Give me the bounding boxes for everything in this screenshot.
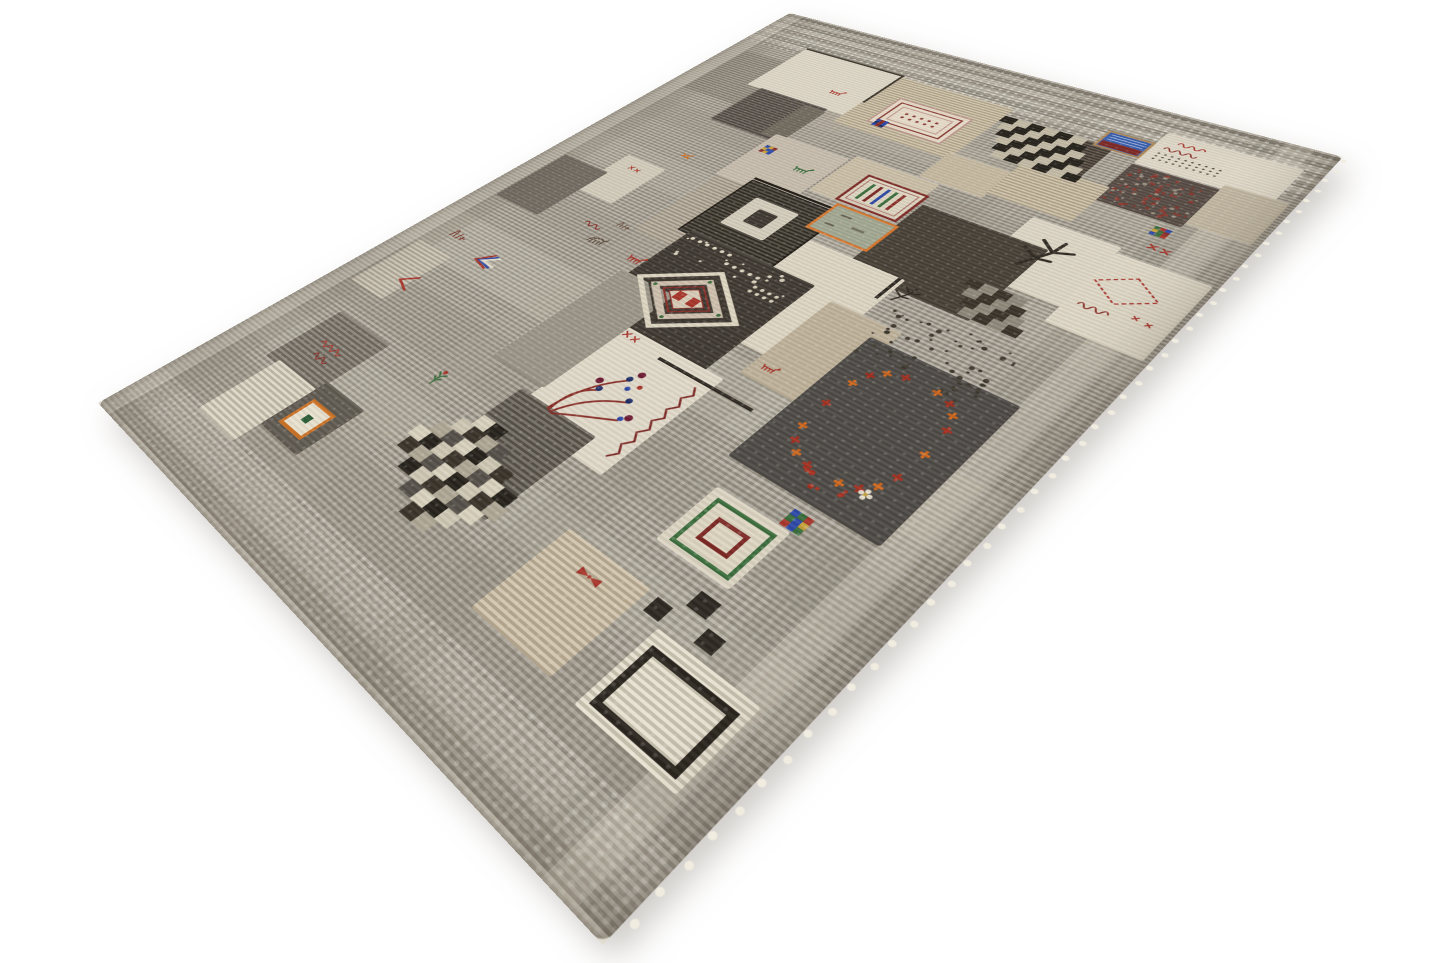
motif-part bbox=[768, 299, 775, 303]
motif-part bbox=[616, 222, 633, 231]
motif-part bbox=[1218, 170, 1222, 172]
fringe-tassel bbox=[1218, 287, 1227, 292]
motif-part bbox=[719, 250, 726, 254]
motif-part bbox=[1161, 157, 1165, 159]
motif-part bbox=[1159, 185, 1165, 188]
fringe-tassel bbox=[946, 579, 958, 588]
motif-part bbox=[1181, 162, 1185, 164]
motif-part bbox=[888, 355, 893, 358]
motif-part bbox=[739, 269, 746, 273]
motif-part bbox=[904, 336, 911, 341]
checker-big bbox=[351, 397, 563, 555]
chevron-red2 bbox=[392, 273, 420, 289]
medallion bbox=[603, 252, 772, 352]
motif-part bbox=[1139, 173, 1143, 175]
motif-part bbox=[586, 234, 609, 247]
motif-part bbox=[1147, 179, 1150, 181]
x-plant bbox=[622, 331, 640, 342]
motif-part bbox=[643, 597, 673, 622]
goat-red-med bbox=[627, 253, 649, 265]
motif-part bbox=[442, 370, 449, 375]
fringe-tassel bbox=[1047, 472, 1058, 480]
fringe-tassel bbox=[908, 619, 920, 629]
motif-part bbox=[764, 279, 769, 282]
seam-cream-v bbox=[874, 278, 902, 299]
motif-part bbox=[1130, 316, 1154, 328]
motif-part bbox=[1158, 159, 1162, 161]
motif-part bbox=[681, 153, 694, 159]
seam-cream-top bbox=[806, 48, 905, 77]
motif-part bbox=[1184, 160, 1188, 162]
motif-part bbox=[726, 253, 733, 257]
fringe-tassel bbox=[733, 805, 746, 818]
motif-part bbox=[1139, 209, 1142, 211]
motif-part bbox=[1151, 157, 1155, 159]
fringe-tassel bbox=[1332, 169, 1340, 173]
motif-part bbox=[956, 380, 964, 385]
motif-part bbox=[686, 591, 722, 620]
motif-part bbox=[977, 369, 983, 373]
motif-part bbox=[781, 295, 785, 297]
motif-part bbox=[779, 275, 785, 278]
goat-red-2 bbox=[760, 362, 780, 374]
motif-part bbox=[698, 260, 703, 263]
motif-part bbox=[1198, 171, 1202, 173]
plant bbox=[545, 357, 673, 445]
gabbeh-rug bbox=[98, 13, 1343, 945]
motif-part bbox=[1178, 193, 1182, 195]
fringe-tassel bbox=[1302, 198, 1311, 202]
seam-med bbox=[657, 357, 754, 412]
sprig-green bbox=[427, 369, 451, 385]
motif-part bbox=[766, 275, 772, 279]
fringe-tassel bbox=[1232, 276, 1241, 281]
motif-part bbox=[1187, 200, 1194, 204]
motif-part bbox=[725, 259, 729, 261]
motif-part bbox=[624, 397, 635, 404]
motif-part bbox=[957, 344, 963, 348]
motif-part bbox=[1168, 207, 1175, 211]
motif-part bbox=[1151, 206, 1155, 208]
fringe-tassel bbox=[1314, 189, 1323, 193]
scribble-low2 bbox=[311, 352, 329, 365]
motif-part bbox=[759, 289, 765, 293]
motif-part bbox=[1183, 215, 1188, 217]
motif-part bbox=[761, 296, 767, 300]
fringe-tassel bbox=[1106, 409, 1116, 416]
fringe-tassel bbox=[653, 885, 667, 899]
motif-part bbox=[1114, 197, 1121, 201]
deer-green bbox=[792, 165, 814, 175]
motif-part bbox=[929, 339, 934, 342]
pixel-blue2 bbox=[779, 509, 815, 536]
fringe-tassel bbox=[826, 706, 839, 717]
blocks-dark bbox=[643, 576, 746, 660]
motif-part bbox=[622, 331, 640, 342]
motif-part bbox=[596, 651, 734, 773]
motif-part bbox=[747, 289, 753, 293]
fringe-tassel bbox=[628, 917, 642, 932]
motif-part bbox=[1121, 197, 1125, 199]
motif-part bbox=[392, 273, 420, 289]
fringe-tassel bbox=[1185, 326, 1195, 332]
motif-part bbox=[766, 292, 772, 296]
motif-part bbox=[1153, 193, 1159, 196]
fringe-tassel bbox=[1295, 209, 1304, 214]
fringe-tassel bbox=[1339, 159, 1347, 163]
motif-part bbox=[792, 165, 814, 175]
motif-part bbox=[746, 272, 753, 276]
motif-part bbox=[1174, 161, 1178, 163]
motif-part bbox=[1133, 173, 1137, 175]
fringe-tassel bbox=[1195, 312, 1205, 318]
motif-part bbox=[1109, 192, 1113, 194]
motif-part bbox=[636, 371, 648, 379]
x-left-cream bbox=[628, 166, 641, 172]
fringe-tassel bbox=[996, 522, 1007, 530]
motif-part bbox=[750, 280, 757, 284]
motif-part bbox=[919, 321, 923, 324]
motif-part bbox=[953, 340, 957, 343]
fringe-tassel bbox=[1282, 219, 1291, 224]
motif-part bbox=[980, 346, 989, 352]
motif-part bbox=[1123, 183, 1128, 186]
motif-part bbox=[1150, 212, 1156, 215]
motif-part bbox=[1189, 190, 1193, 192]
motif-part bbox=[693, 628, 726, 656]
twig-white bbox=[1009, 235, 1080, 277]
motif-part bbox=[1164, 161, 1168, 163]
motif-part bbox=[1124, 185, 1130, 188]
motif-part bbox=[883, 330, 892, 335]
motif-part bbox=[1194, 166, 1198, 168]
motif-part bbox=[1154, 155, 1158, 157]
motif-part bbox=[871, 344, 877, 348]
diamond-outline-w2 bbox=[1075, 268, 1182, 328]
fringe-tassel bbox=[1160, 352, 1170, 358]
motif-part bbox=[1134, 183, 1140, 186]
square-green bbox=[672, 500, 774, 578]
motif-part bbox=[1178, 165, 1182, 167]
sticks-2 bbox=[616, 222, 633, 231]
fringe-tassel bbox=[682, 859, 696, 873]
fringe-tassel bbox=[925, 598, 937, 607]
motif-part bbox=[1138, 175, 1144, 178]
fringe-tassel bbox=[781, 754, 794, 766]
motif-part bbox=[1142, 197, 1149, 201]
fringe-tassel bbox=[1274, 231, 1283, 236]
dots-white1 bbox=[1151, 152, 1222, 177]
motif-part bbox=[926, 322, 933, 326]
bird-orange bbox=[681, 153, 694, 159]
scribble-mid bbox=[584, 221, 602, 230]
motif-part bbox=[1119, 178, 1125, 181]
scribble-white2 bbox=[1076, 302, 1110, 317]
motif-part bbox=[1195, 200, 1199, 202]
motif-part bbox=[1205, 173, 1209, 175]
motif-part bbox=[1147, 194, 1154, 197]
fringe-tassel bbox=[845, 682, 857, 693]
checker-top bbox=[963, 116, 1116, 183]
fringe-tassel bbox=[1118, 393, 1128, 400]
motif-part bbox=[623, 386, 632, 392]
motif-part bbox=[955, 375, 964, 381]
scribble-white1b bbox=[1163, 147, 1198, 159]
motif-part bbox=[741, 263, 745, 265]
motif-part bbox=[1168, 194, 1174, 197]
motif-part bbox=[1174, 181, 1180, 184]
motif-part bbox=[627, 253, 649, 265]
fringe-tassel bbox=[1262, 241, 1271, 246]
motif-part bbox=[894, 314, 902, 319]
moth-red bbox=[576, 566, 603, 588]
fringe-tassel bbox=[1209, 300, 1218, 306]
fringe-tassel bbox=[1078, 440, 1089, 447]
motif-part bbox=[1185, 167, 1189, 169]
motif-part bbox=[1138, 172, 1142, 174]
motif-part bbox=[1185, 212, 1190, 215]
motif-part bbox=[814, 486, 820, 491]
motif-part bbox=[1144, 206, 1150, 209]
motif-part bbox=[874, 352, 879, 355]
motif-part bbox=[945, 329, 950, 332]
motif-part bbox=[1171, 163, 1175, 165]
motif-part bbox=[1188, 164, 1192, 166]
motif-part bbox=[711, 246, 718, 250]
motif-part bbox=[852, 349, 860, 354]
motif-part bbox=[928, 333, 935, 338]
motif-part bbox=[1161, 206, 1167, 209]
motif-part bbox=[969, 333, 973, 336]
twig-dark bbox=[887, 284, 923, 306]
fringe-tassel bbox=[1060, 455, 1071, 462]
motif-part bbox=[1167, 159, 1171, 161]
motif-part bbox=[731, 265, 738, 269]
motif-part bbox=[806, 483, 815, 490]
motif-part bbox=[964, 383, 972, 388]
motif-part bbox=[935, 329, 943, 334]
scribble-low bbox=[319, 340, 343, 357]
dots-med-3 bbox=[747, 285, 780, 303]
motif-part bbox=[1190, 162, 1194, 164]
motif-part bbox=[1132, 205, 1136, 207]
motif-part bbox=[1115, 196, 1119, 198]
motif-part bbox=[887, 284, 923, 306]
motif-part bbox=[1177, 158, 1181, 160]
motif-part bbox=[752, 285, 758, 289]
motif-part bbox=[1009, 235, 1080, 277]
motif-part bbox=[911, 356, 918, 360]
motif-part bbox=[1191, 187, 1195, 189]
seam-cream-right bbox=[862, 75, 905, 102]
motif-part bbox=[1164, 154, 1168, 156]
motif-part bbox=[829, 89, 847, 96]
motif-part bbox=[892, 309, 898, 312]
square-orange-small bbox=[281, 401, 333, 438]
motif-part bbox=[1174, 206, 1180, 209]
fringe-tassel bbox=[962, 559, 973, 568]
motif-part bbox=[1215, 172, 1219, 174]
ring-flowers bbox=[767, 357, 981, 510]
motif-part bbox=[1156, 182, 1160, 184]
motif-part bbox=[888, 341, 893, 344]
motif-part bbox=[968, 366, 976, 371]
motif-part bbox=[773, 295, 780, 299]
motif-part bbox=[449, 230, 470, 242]
fringe-tassel bbox=[1170, 338, 1180, 344]
motif-part bbox=[697, 240, 704, 244]
motif-part bbox=[1201, 168, 1205, 170]
motif-part bbox=[1211, 168, 1215, 170]
motif-part bbox=[1173, 196, 1178, 199]
motif-part bbox=[754, 276, 761, 280]
motif-part bbox=[628, 166, 641, 172]
motif-part bbox=[901, 355, 907, 359]
motif-part bbox=[1208, 170, 1212, 172]
motif-part bbox=[928, 347, 934, 351]
motif-part bbox=[1116, 189, 1120, 191]
fringe-tassel bbox=[1241, 264, 1250, 269]
motif-part bbox=[1141, 182, 1148, 185]
fringe-tassel bbox=[755, 777, 768, 789]
motif-part bbox=[1199, 190, 1203, 192]
checker-mid bbox=[938, 278, 1047, 339]
motif-part bbox=[1126, 173, 1133, 176]
motif-part bbox=[1154, 197, 1162, 201]
motif-part bbox=[1102, 196, 1107, 199]
motif-part bbox=[686, 237, 690, 239]
motif-part bbox=[1204, 166, 1208, 168]
motif-part bbox=[965, 371, 970, 374]
motif-part bbox=[704, 241, 709, 244]
camel-brown bbox=[586, 234, 609, 247]
frame-black bbox=[596, 651, 734, 773]
motif-part bbox=[1141, 202, 1147, 205]
motif-part bbox=[1212, 175, 1216, 177]
x-row-right bbox=[1147, 244, 1171, 255]
motif-part bbox=[1171, 215, 1177, 218]
motif-part bbox=[1147, 244, 1171, 255]
motif-layer bbox=[98, 13, 1343, 945]
zigzag-plant bbox=[606, 387, 701, 459]
scribble-white1 bbox=[1177, 143, 1207, 153]
motif-part bbox=[622, 414, 635, 423]
fringe-tassel bbox=[1145, 365, 1155, 371]
fringe-tassel bbox=[1015, 506, 1026, 514]
motif-part bbox=[1131, 188, 1138, 192]
motif-part bbox=[943, 392, 949, 396]
photo-canvas bbox=[0, 0, 1445, 963]
motif-part bbox=[1197, 164, 1201, 166]
motif-part bbox=[1137, 169, 1142, 171]
deer-red-top bbox=[829, 89, 847, 96]
motif-part bbox=[1188, 192, 1195, 196]
motif-part bbox=[904, 318, 909, 321]
fringe-tassel bbox=[706, 829, 719, 842]
motif-part bbox=[973, 395, 978, 398]
fringe-tassel bbox=[886, 638, 898, 648]
motif-part bbox=[944, 349, 949, 352]
sticks-left bbox=[449, 230, 470, 242]
fringe-tassel bbox=[982, 542, 993, 551]
motif-part bbox=[754, 293, 760, 297]
chevrons-left bbox=[470, 253, 502, 270]
motif-part bbox=[945, 361, 950, 364]
motif-part bbox=[1118, 184, 1122, 186]
motif-part bbox=[889, 323, 897, 328]
rug-shadow-wrap bbox=[0, 0, 1445, 963]
motif-part bbox=[999, 356, 1008, 362]
fringe-tassel bbox=[1254, 253, 1263, 258]
dots-med-1 bbox=[690, 237, 733, 257]
motif-part bbox=[690, 237, 697, 241]
motif-part bbox=[723, 262, 730, 266]
motif-part bbox=[887, 350, 894, 354]
fringe-tassel bbox=[802, 728, 815, 739]
motif-part bbox=[778, 278, 786, 283]
fringe-tassel bbox=[869, 661, 881, 671]
motif-part bbox=[1170, 156, 1174, 158]
motif-part bbox=[982, 378, 991, 384]
motif-part bbox=[1191, 169, 1195, 171]
motif-part bbox=[732, 275, 737, 278]
motif-part bbox=[871, 332, 875, 334]
motif-part bbox=[948, 369, 955, 374]
motif-part bbox=[914, 339, 921, 344]
fringe-tassel bbox=[1090, 423, 1100, 430]
motif-part bbox=[885, 327, 890, 330]
motif-part bbox=[760, 362, 780, 374]
pixel-right bbox=[1148, 226, 1173, 239]
motif-part bbox=[1136, 177, 1141, 179]
motif-part bbox=[970, 347, 975, 350]
motif-part bbox=[1157, 152, 1161, 154]
ruglet-blue bbox=[1094, 131, 1154, 157]
fringe-tassel bbox=[1134, 380, 1144, 386]
fringe-tassel bbox=[1029, 488, 1040, 496]
motif-part bbox=[1113, 201, 1116, 203]
motif-part bbox=[704, 243, 711, 247]
fringe-tassel bbox=[1321, 178, 1330, 182]
motif-part bbox=[1166, 184, 1171, 186]
pixel-bluegold bbox=[758, 145, 778, 155]
motif-part bbox=[1008, 352, 1012, 355]
motif-part bbox=[594, 376, 606, 384]
motif-part bbox=[977, 340, 982, 343]
seam-window bbox=[753, 177, 843, 213]
motif-part bbox=[636, 385, 644, 390]
